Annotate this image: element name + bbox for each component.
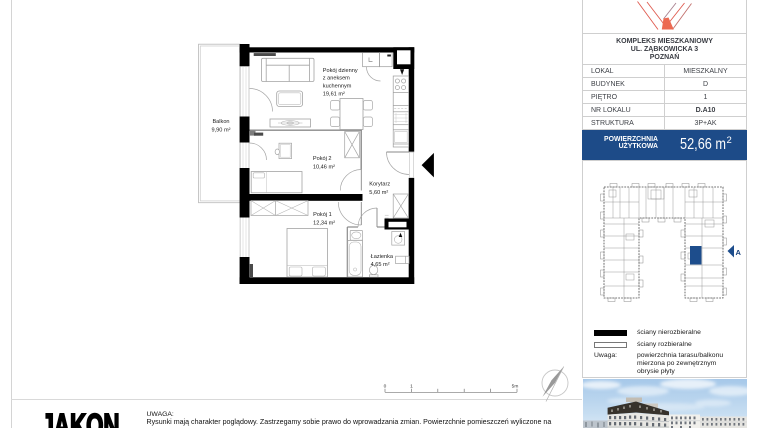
- svg-text:Pokój 2: Pokój 2: [313, 156, 332, 162]
- svg-text:z aneksem: z aneksem: [323, 76, 350, 82]
- svg-text:Balkon: Balkon: [212, 119, 229, 125]
- svg-text:10,46 m²: 10,46 m²: [313, 165, 335, 171]
- svg-text:12,34 m²: 12,34 m²: [313, 220, 335, 226]
- svg-text:19,61 m²: 19,61 m²: [323, 92, 345, 98]
- svg-text:1: 1: [410, 384, 413, 390]
- svg-text:kuchennym: kuchennym: [323, 84, 352, 90]
- svg-text:Pokój 1: Pokój 1: [313, 212, 332, 218]
- svg-text:0: 0: [384, 384, 387, 390]
- svg-text:Pokój dzienny: Pokój dzienny: [323, 68, 358, 74]
- svg-text:5,60 m²: 5,60 m²: [369, 190, 388, 196]
- svg-text:4,65 m²: 4,65 m²: [371, 262, 390, 268]
- svg-text:5m: 5m: [512, 384, 519, 390]
- svg-text:52,66 m2: 52,66 m2: [680, 135, 732, 153]
- svg-text:Łazienka: Łazienka: [371, 254, 394, 260]
- svg-text:9,90 m²: 9,90 m²: [212, 127, 231, 133]
- svg-text:JAKON: JAKON: [42, 412, 120, 428]
- svg-text:A: A: [736, 248, 742, 257]
- svg-text:Korytarz: Korytarz: [369, 182, 390, 188]
